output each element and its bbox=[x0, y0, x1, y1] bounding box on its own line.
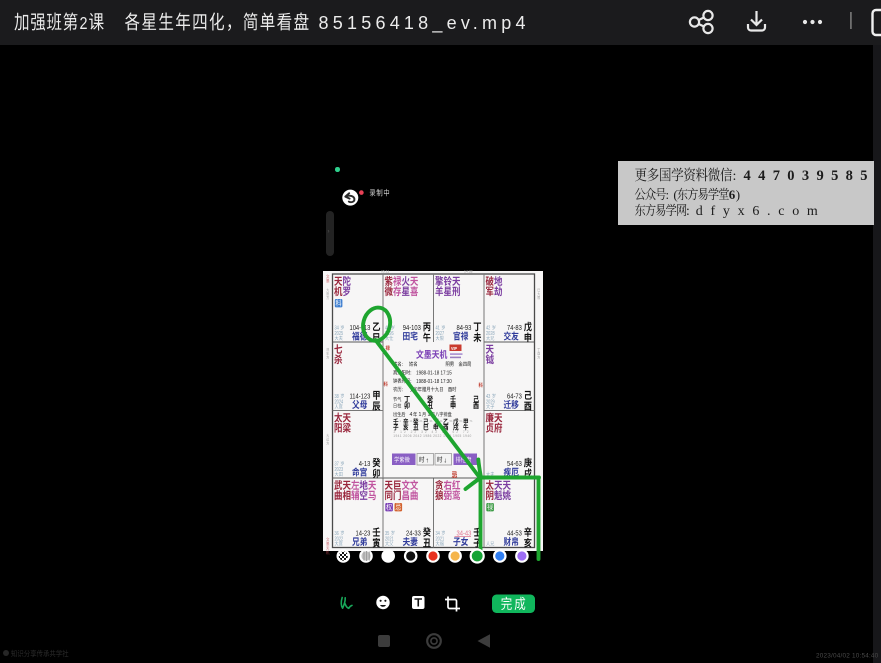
svg-text:): ) bbox=[736, 187, 740, 202]
svg-text::: : bbox=[686, 203, 690, 218]
svg-text:05:11: 05:11 bbox=[381, 269, 389, 273]
svg-text::: : bbox=[733, 169, 737, 184]
svg-text:14:38: 14:38 bbox=[464, 269, 473, 273]
svg-text:: (: : ( bbox=[666, 187, 679, 202]
svg-text:6: 6 bbox=[729, 187, 736, 202]
svg-text:2: 2 bbox=[80, 15, 88, 34]
svg-text:dfyx6.com: dfyx6.com bbox=[696, 204, 818, 219]
svg-text:2023/04/02 10:54:40: 2023/04/02 10:54:40 bbox=[816, 653, 879, 660]
svg-text:85156418_ev.mp4: 85156418_ev.mp4 bbox=[319, 13, 526, 34]
svg-text:447039585: 447039585 bbox=[744, 168, 868, 184]
